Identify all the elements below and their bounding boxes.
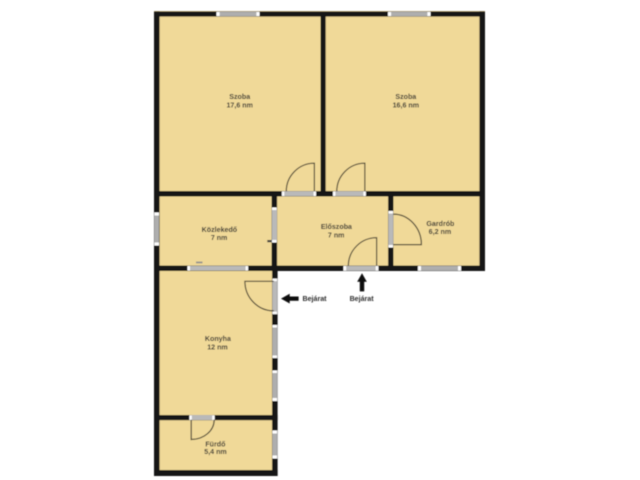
svg-text:Közlekedő: Közlekedő (202, 226, 238, 234)
svg-text:Gardrób: Gardrób (426, 220, 455, 228)
svg-text:Előszoba: Előszoba (321, 223, 352, 231)
svg-text:Bejárat: Bejárat (302, 295, 327, 303)
svg-text:6,2 nm: 6,2 nm (429, 228, 451, 236)
svg-text:Szoba: Szoba (229, 93, 250, 101)
svg-text:12 nm: 12 nm (207, 343, 228, 351)
svg-text:Konyha: Konyha (205, 335, 231, 343)
svg-text:7 nm: 7 nm (211, 234, 228, 242)
svg-text:7 nm: 7 nm (328, 231, 345, 239)
svg-text:16,6 nm: 16,6 nm (393, 101, 419, 109)
svg-text:Szoba: Szoba (395, 93, 416, 101)
svg-text:Bejárat: Bejárat (350, 295, 375, 303)
svg-text:5,4 nm: 5,4 nm (204, 448, 226, 456)
svg-text:17,6 nm: 17,6 nm (226, 101, 252, 109)
